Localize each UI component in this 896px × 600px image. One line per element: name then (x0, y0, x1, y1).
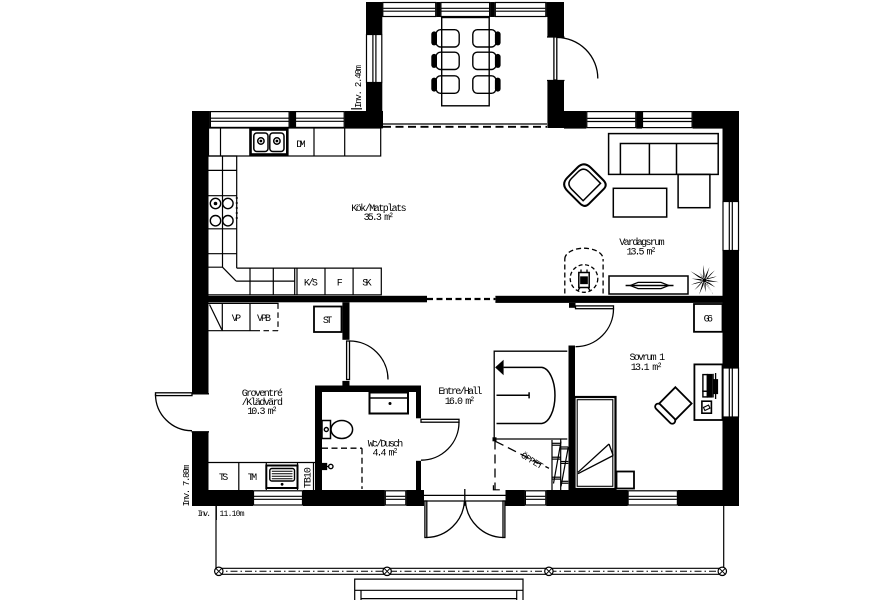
svg-text:Inv. 7.80m: Inv. 7.80m (182, 464, 192, 506)
svg-text:Inv.: Inv. (198, 510, 212, 519)
svg-text:TS: TS (219, 473, 228, 484)
svg-text:13.1 m²: 13.1 m² (631, 363, 663, 374)
svg-text:F: F (337, 279, 343, 290)
svg-text:G6: G6 (704, 315, 713, 326)
svg-text:K/S: K/S (304, 278, 318, 290)
svg-text:13.5 m²: 13.5 m² (627, 248, 657, 259)
svg-text:VP: VP (232, 314, 241, 325)
svg-text:11.10m: 11.10m (220, 510, 245, 519)
svg-text:SK: SK (362, 279, 371, 290)
svg-text:35.3 m²: 35.3 m² (364, 213, 395, 224)
svg-text:TB10: TB10 (304, 467, 315, 488)
svg-text:16.0 m²: 16.0 m² (445, 397, 476, 408)
svg-text:TM: TM (248, 473, 257, 484)
svg-text:10.3 m²: 10.3 m² (247, 407, 278, 418)
svg-text:VPB: VPB (257, 314, 271, 325)
svg-text:ST: ST (323, 316, 332, 327)
svg-text:Inv. 2.40m: Inv. 2.40m (354, 65, 364, 108)
svg-text:4.4 m²: 4.4 m² (373, 449, 399, 460)
svg-text:DM: DM (296, 140, 305, 151)
